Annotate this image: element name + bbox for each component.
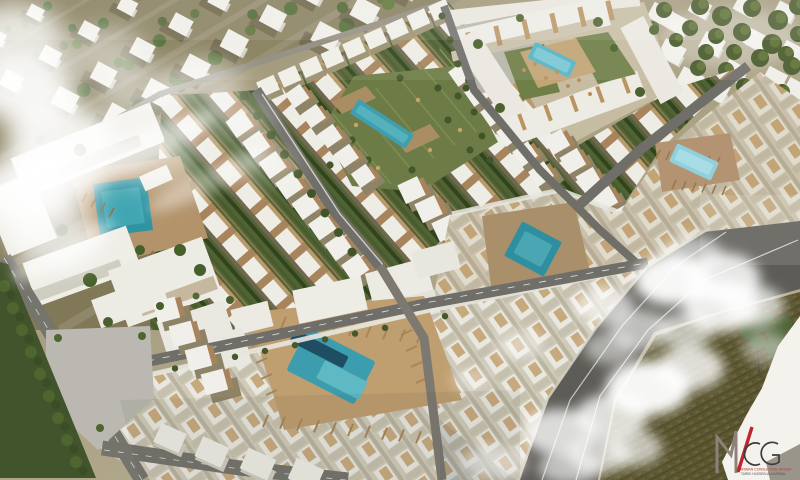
svg-text:MARWAN CONSULTING GROUP: MARWAN CONSULTING GROUP bbox=[737, 468, 792, 472]
svg-text:TAREK HUSSEIN ALMARWAN: TAREK HUSSEIN ALMARWAN bbox=[741, 472, 786, 476]
